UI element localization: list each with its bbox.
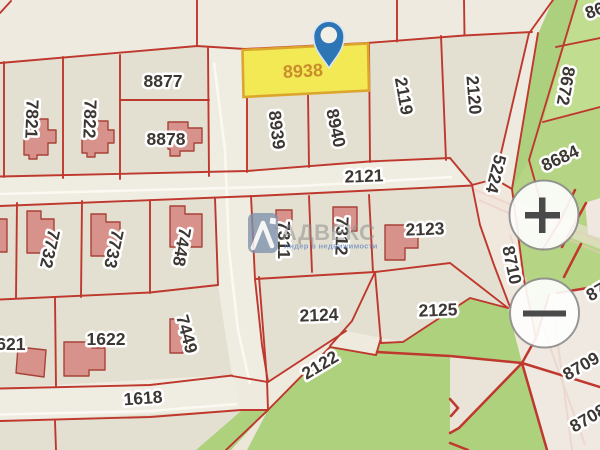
svg-text:2125: 2125 bbox=[418, 299, 458, 320]
svg-text:2120: 2120 bbox=[462, 75, 485, 116]
svg-text:7821: 7821 bbox=[21, 99, 42, 139]
svg-text:1622: 1622 bbox=[87, 329, 126, 349]
svg-text:2124: 2124 bbox=[299, 304, 339, 325]
svg-text:2121: 2121 bbox=[344, 165, 384, 186]
svg-text:лидер в недвижимости: лидер в недвижимости bbox=[284, 242, 378, 251]
svg-text:2123: 2123 bbox=[405, 218, 445, 239]
svg-text:1621: 1621 bbox=[0, 334, 26, 354]
svg-text:8938: 8938 bbox=[282, 60, 323, 82]
svg-text:1618: 1618 bbox=[123, 387, 163, 410]
svg-text:8878: 8878 bbox=[147, 129, 186, 149]
svg-text:8877: 8877 bbox=[144, 71, 183, 91]
svg-text:7822: 7822 bbox=[79, 99, 100, 139]
